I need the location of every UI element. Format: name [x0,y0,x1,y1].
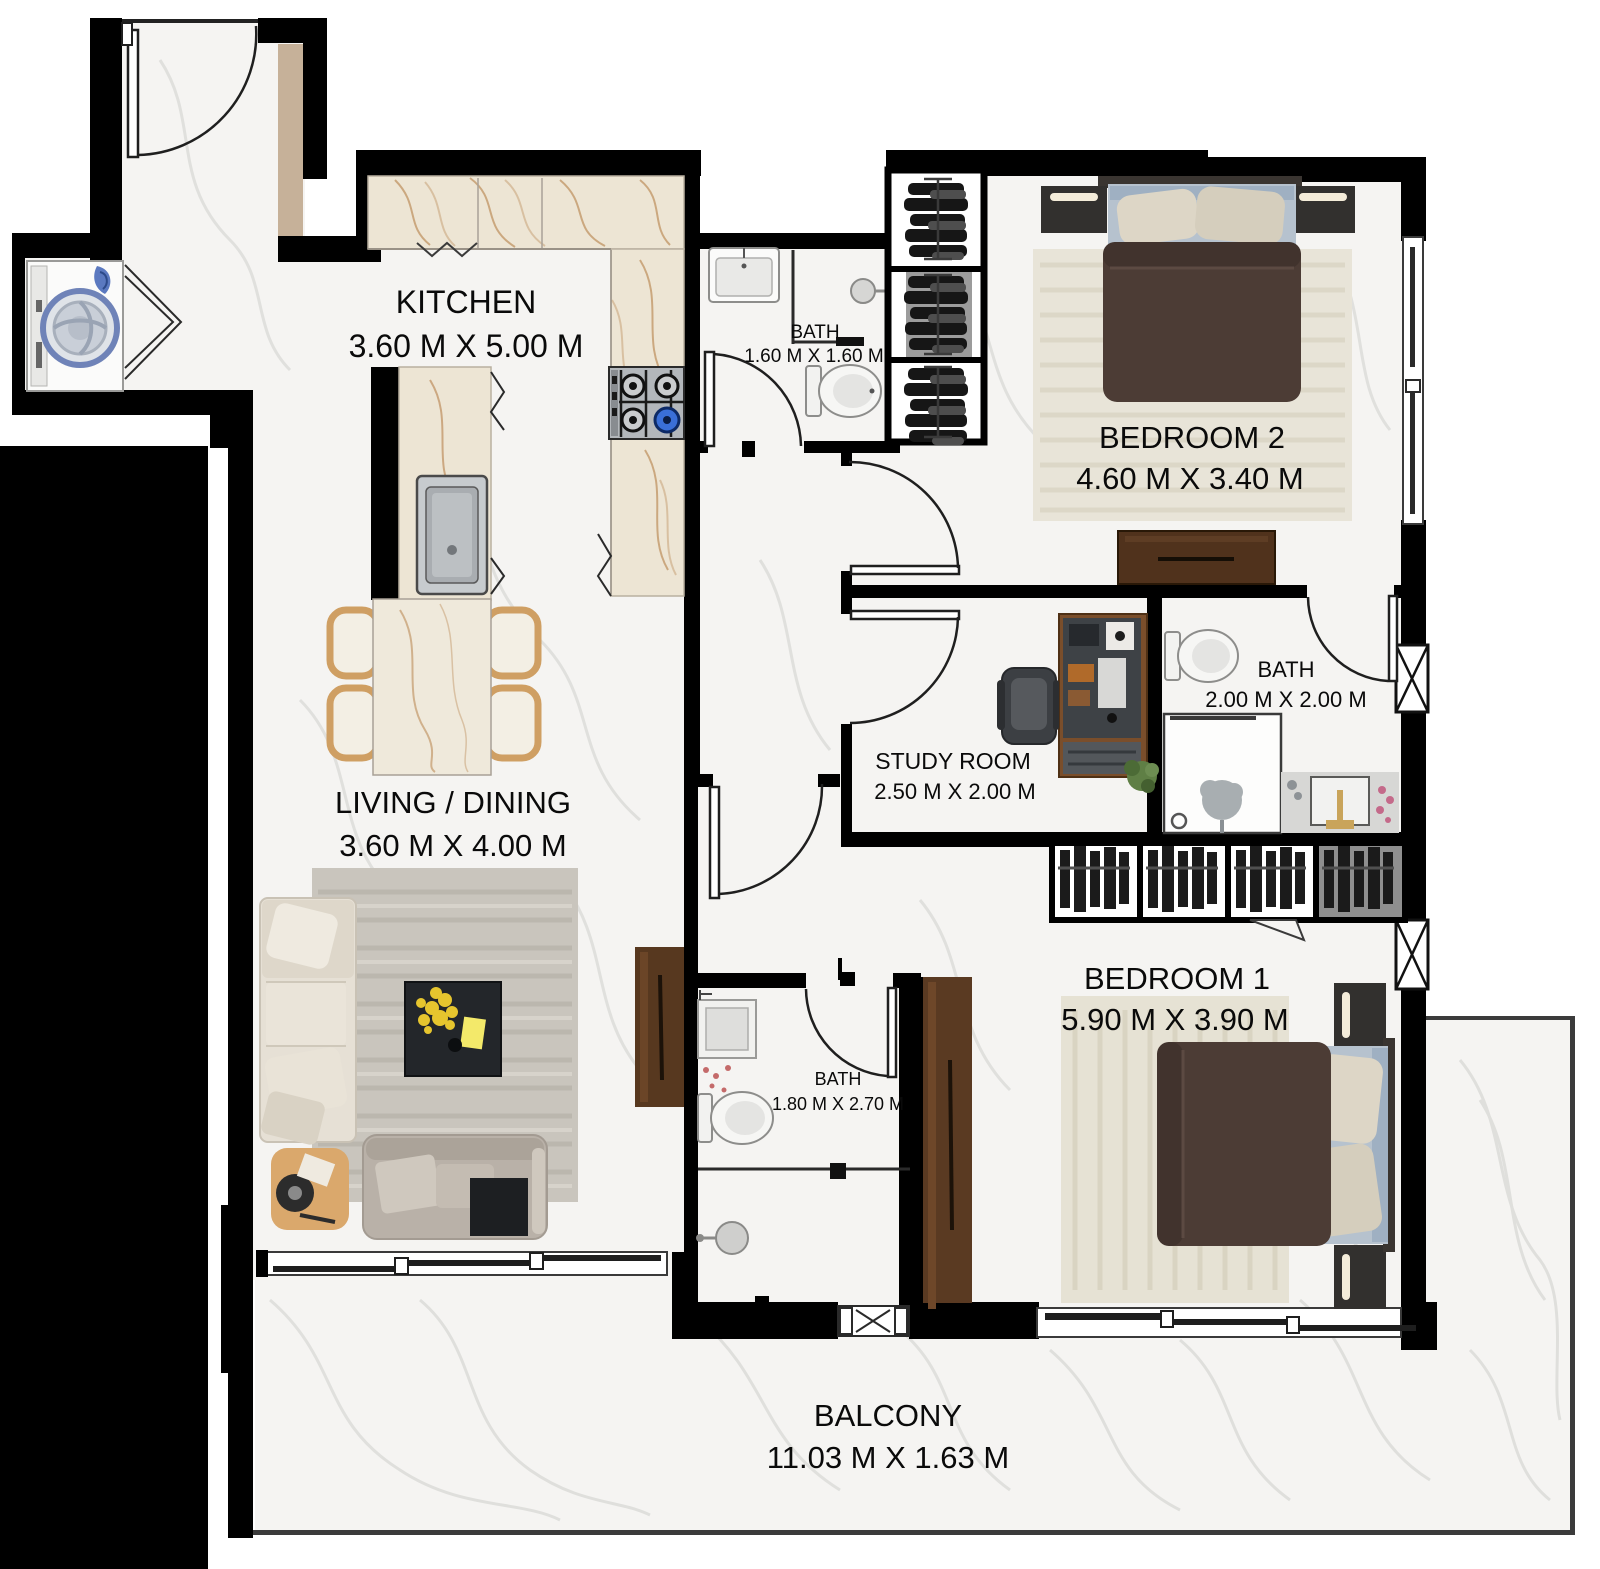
svg-text:2.00 M X 2.00 M: 2.00 M X 2.00 M [1205,687,1366,712]
svg-text:KITCHEN: KITCHEN [396,284,536,320]
svg-text:BATH: BATH [815,1069,862,1089]
svg-text:2.50 M X 2.00 M: 2.50 M X 2.00 M [874,779,1035,804]
svg-text:LIVING / DINING: LIVING / DINING [335,785,571,820]
svg-text:STUDY ROOM: STUDY ROOM [875,748,1030,774]
svg-text:BATH: BATH [1257,657,1314,682]
svg-text:3.60 M X 4.00 M: 3.60 M X 4.00 M [339,828,566,863]
svg-text:BALCONY: BALCONY [814,1398,962,1433]
svg-text:4.60 M X 3.40 M: 4.60 M X 3.40 M [1076,461,1303,496]
svg-text:BATH: BATH [790,322,839,343]
svg-text:3.60 M X 5.00 M: 3.60 M X 5.00 M [349,328,584,364]
svg-text:BEDROOM 2: BEDROOM 2 [1099,420,1285,455]
svg-text:1.60 M X 1.60 M: 1.60 M X 1.60 M [744,346,883,367]
svg-text:5.90 M X 3.90 M: 5.90 M X 3.90 M [1061,1002,1288,1037]
svg-text:BEDROOM 1: BEDROOM 1 [1084,961,1270,996]
svg-text:11.03 M X 1.63 M: 11.03 M X 1.63 M [767,1440,1009,1475]
svg-text:1.80 M X 2.70 M: 1.80 M X 2.70 M [772,1094,904,1114]
